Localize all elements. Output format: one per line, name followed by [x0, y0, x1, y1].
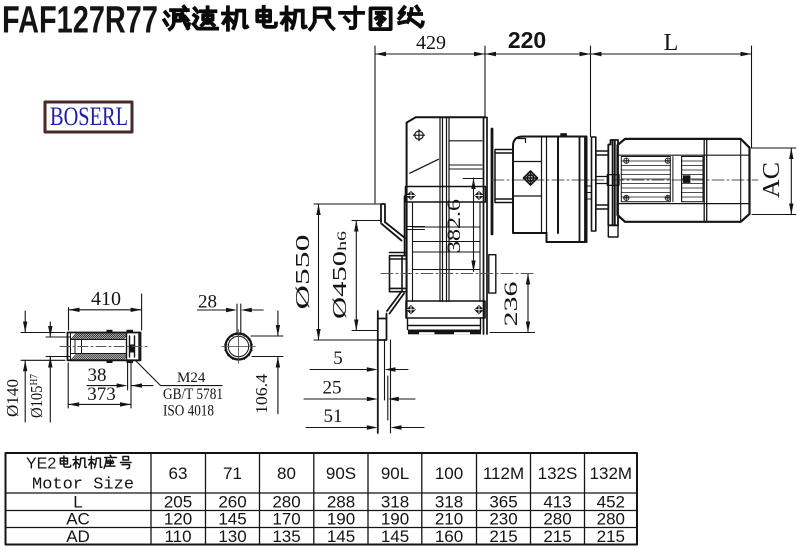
svg-text:M24: M24 — [177, 370, 206, 386]
svg-text:160: 160 — [435, 527, 463, 546]
svg-text:100: 100 — [435, 464, 463, 483]
svg-text:5: 5 — [333, 348, 343, 369]
svg-text:410: 410 — [91, 288, 121, 310]
svg-text:230: 230 — [489, 510, 517, 529]
svg-text:130: 130 — [218, 527, 246, 546]
svg-text:L: L — [664, 30, 679, 56]
svg-text:215: 215 — [597, 527, 625, 546]
svg-text:190: 190 — [381, 510, 409, 529]
svg-text:110: 110 — [164, 527, 191, 546]
svg-text:GB/T 5781: GB/T 5781 — [163, 386, 223, 403]
svg-text:145: 145 — [381, 527, 409, 546]
svg-text:210: 210 — [435, 510, 463, 529]
svg-text:28: 28 — [198, 292, 217, 313]
svg-text:FAF127R77: FAF127R77 — [2, 0, 158, 42]
svg-text:215: 215 — [489, 527, 517, 546]
svg-text:132M: 132M — [590, 464, 633, 483]
svg-text:106.4: 106.4 — [252, 374, 271, 414]
svg-text:90L: 90L — [381, 464, 409, 483]
svg-text:AC: AC — [759, 162, 785, 198]
svg-text:Ø550: Ø550 — [292, 235, 314, 310]
svg-text:215: 215 — [543, 527, 571, 546]
svg-text:25: 25 — [323, 378, 342, 399]
svg-text:90S: 90S — [326, 464, 356, 483]
svg-text:190: 190 — [327, 510, 355, 529]
svg-text:112M: 112M — [483, 464, 524, 483]
svg-text:280: 280 — [543, 510, 571, 529]
svg-text:145: 145 — [327, 527, 355, 546]
svg-text:51: 51 — [324, 406, 343, 427]
svg-text:170: 170 — [272, 510, 300, 529]
svg-text:382.6: 382.6 — [444, 199, 465, 253]
svg-text:135: 135 — [272, 527, 300, 546]
svg-text:ISO 4018: ISO 4018 — [163, 403, 214, 420]
svg-text:AC: AC — [66, 510, 90, 529]
svg-text:38: 38 — [88, 365, 107, 386]
svg-text:Ø450h6: Ø450h6 — [329, 230, 351, 319]
svg-text:280: 280 — [597, 510, 625, 529]
svg-text:373: 373 — [87, 384, 116, 405]
svg-text:71: 71 — [223, 464, 242, 483]
svg-text:429: 429 — [416, 32, 446, 54]
svg-text:120: 120 — [164, 510, 192, 529]
svg-text:80: 80 — [277, 464, 296, 483]
svg-text:236: 236 — [501, 282, 522, 327]
svg-text:Motor Size: Motor Size — [32, 476, 134, 495]
svg-text:AD: AD — [66, 527, 90, 546]
svg-text:Ø140: Ø140 — [3, 379, 22, 417]
svg-text:Ø105H7: Ø105H7 — [27, 374, 46, 418]
svg-text:YE2: YE2 — [26, 456, 56, 473]
svg-text:63: 63 — [169, 464, 188, 483]
svg-text:BOSERL: BOSERL — [50, 102, 128, 131]
svg-text:220: 220 — [508, 27, 546, 53]
svg-text:132S: 132S — [538, 464, 578, 483]
svg-text:145: 145 — [218, 510, 246, 529]
